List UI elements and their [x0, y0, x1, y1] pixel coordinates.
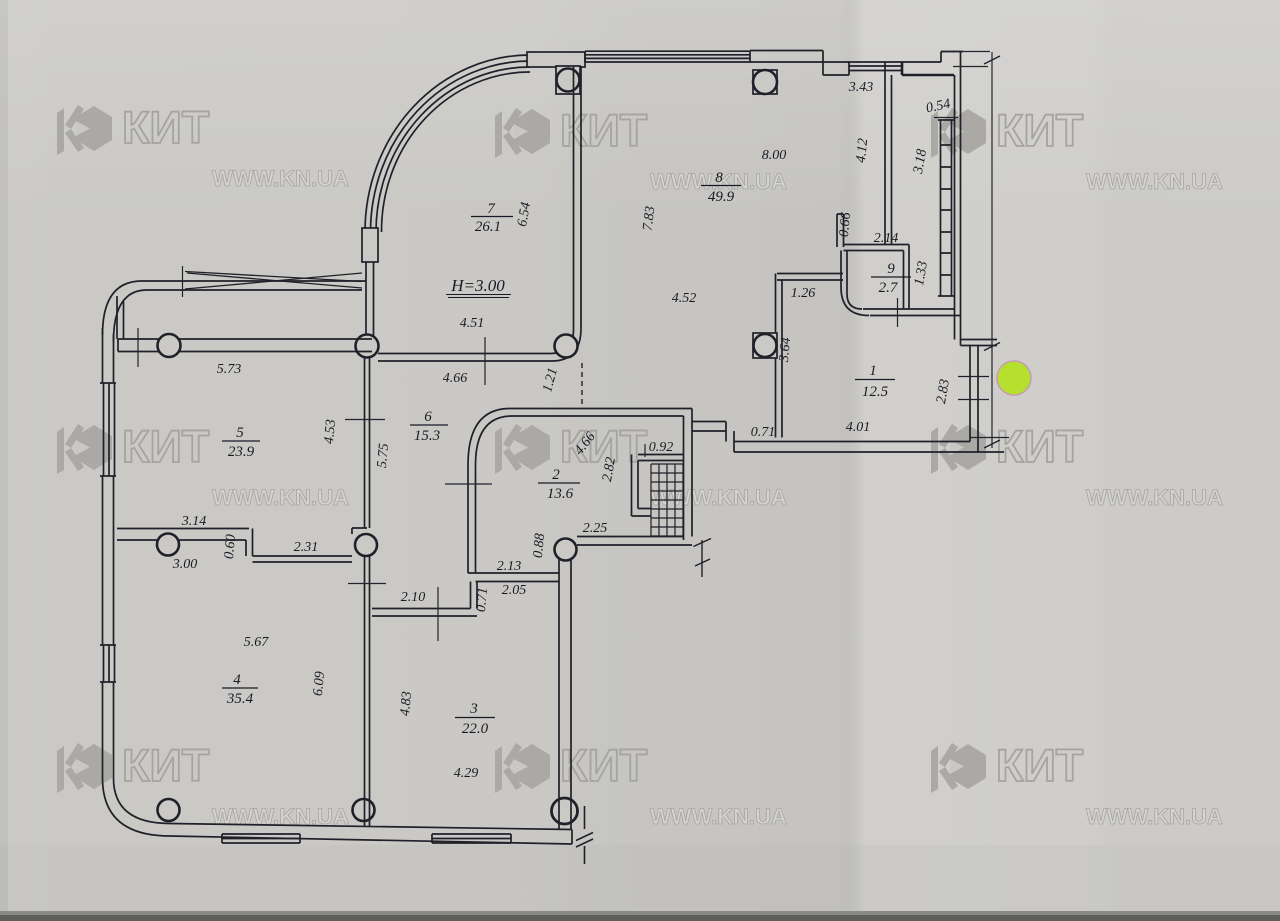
- svg-text:4.12: 4.12: [854, 138, 871, 164]
- svg-text:3.43: 3.43: [848, 80, 874, 95]
- svg-text:4.66: 4.66: [443, 371, 468, 386]
- svg-text:26.1: 26.1: [475, 219, 501, 235]
- svg-text:8.00: 8.00: [762, 148, 787, 163]
- svg-text:8: 8: [715, 170, 723, 186]
- svg-text:5.75: 5.75: [375, 443, 392, 469]
- svg-text:2: 2: [552, 467, 560, 483]
- svg-text:0.66: 0.66: [837, 212, 854, 238]
- svg-text:5.73: 5.73: [217, 362, 242, 377]
- svg-text:3: 3: [469, 701, 478, 717]
- svg-text:49.9: 49.9: [708, 189, 735, 205]
- svg-text:4.52: 4.52: [672, 291, 697, 306]
- svg-text:7.83: 7.83: [641, 206, 659, 232]
- svg-text:4.29: 4.29: [454, 766, 479, 781]
- svg-text:4: 4: [233, 672, 241, 688]
- svg-text:35.4: 35.4: [226, 691, 254, 707]
- svg-text:6: 6: [424, 409, 432, 425]
- svg-text:1: 1: [869, 363, 877, 379]
- svg-text:4.53: 4.53: [322, 419, 339, 445]
- svg-text:2.7: 2.7: [879, 280, 899, 296]
- svg-text:2.14: 2.14: [874, 231, 899, 246]
- svg-text:4.83: 4.83: [398, 691, 415, 717]
- svg-text:9: 9: [887, 261, 895, 277]
- svg-text:4.01: 4.01: [846, 420, 871, 435]
- svg-text:0.88: 0.88: [531, 533, 548, 559]
- svg-text:1.26: 1.26: [791, 286, 816, 301]
- svg-text:4.51: 4.51: [460, 316, 485, 331]
- svg-text:23.9: 23.9: [228, 444, 255, 460]
- svg-text:0.71: 0.71: [751, 425, 776, 440]
- svg-text:3.00: 3.00: [172, 557, 198, 572]
- svg-text:2.25: 2.25: [583, 521, 608, 536]
- svg-text:5: 5: [236, 425, 244, 441]
- svg-text:5.67: 5.67: [244, 635, 270, 650]
- svg-text:0.60: 0.60: [222, 534, 239, 560]
- svg-text:0.71: 0.71: [474, 587, 491, 613]
- svg-text:3.64: 3.64: [777, 337, 794, 364]
- svg-text:H=3.00: H=3.00: [450, 276, 505, 295]
- svg-text:12.5: 12.5: [862, 384, 889, 400]
- svg-text:22.0: 22.0: [462, 721, 489, 737]
- svg-text:2.31: 2.31: [294, 540, 319, 555]
- svg-text:3.14: 3.14: [181, 514, 207, 529]
- svg-text:13.6: 13.6: [547, 486, 574, 502]
- svg-text:2.05: 2.05: [502, 583, 527, 598]
- svg-text:15.3: 15.3: [414, 428, 440, 444]
- svg-text:2.13: 2.13: [497, 559, 522, 574]
- svg-text:0.92: 0.92: [649, 440, 674, 455]
- svg-text:2.10: 2.10: [401, 590, 426, 605]
- svg-text:6.09: 6.09: [311, 671, 328, 697]
